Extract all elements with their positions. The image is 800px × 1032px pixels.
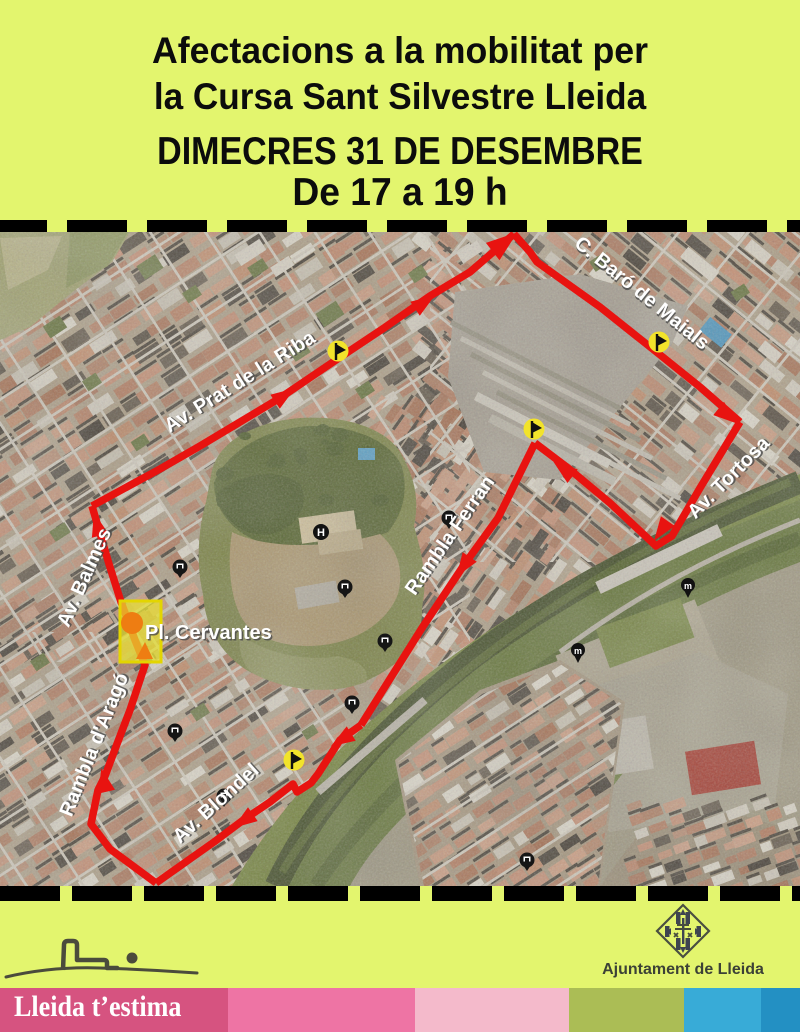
svg-text:H: H <box>317 527 325 539</box>
svg-text:m: m <box>574 646 582 656</box>
svg-text:m: m <box>684 581 692 591</box>
svg-text:Pl. Cervantes: Pl. Cervantes <box>145 622 272 644</box>
svg-text:Ajuntament de Lleida: Ajuntament de Lleida <box>602 961 764 978</box>
